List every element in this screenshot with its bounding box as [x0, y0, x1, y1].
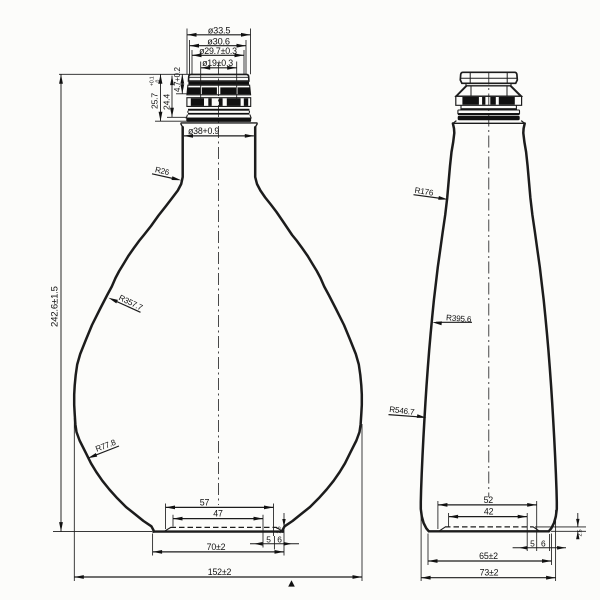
svg-text:57: 57 [200, 497, 210, 507]
svg-text:242.6±1.5: 242.6±1.5 [50, 286, 61, 327]
svg-text:5: 5 [266, 535, 271, 545]
svg-text:-0: -0 [156, 79, 162, 84]
svg-text:4.7+0.2: 4.7+0.2 [173, 67, 182, 92]
svg-text:2.5: 2.5 [578, 529, 584, 536]
svg-text:6: 6 [541, 538, 546, 548]
svg-text:25.7: 25.7 [150, 93, 160, 109]
svg-text:70±2: 70±2 [207, 542, 226, 552]
svg-text:47: 47 [213, 509, 223, 519]
svg-text:152±2: 152±2 [208, 567, 232, 577]
svg-text:R395.6: R395.6 [446, 313, 472, 324]
svg-text:73±2: 73±2 [480, 568, 499, 578]
svg-text:65±2: 65±2 [479, 551, 498, 561]
svg-text:52: 52 [484, 495, 494, 505]
svg-text:5: 5 [530, 538, 535, 548]
svg-text:2.5: 2.5 [276, 526, 282, 533]
svg-text:24.4: 24.4 [162, 94, 172, 110]
svg-text:ø33.5: ø33.5 [208, 26, 231, 36]
svg-text:42: 42 [484, 507, 494, 517]
svg-text:6: 6 [277, 535, 282, 545]
svg-text:ø29.7±0.3: ø29.7±0.3 [199, 46, 237, 56]
